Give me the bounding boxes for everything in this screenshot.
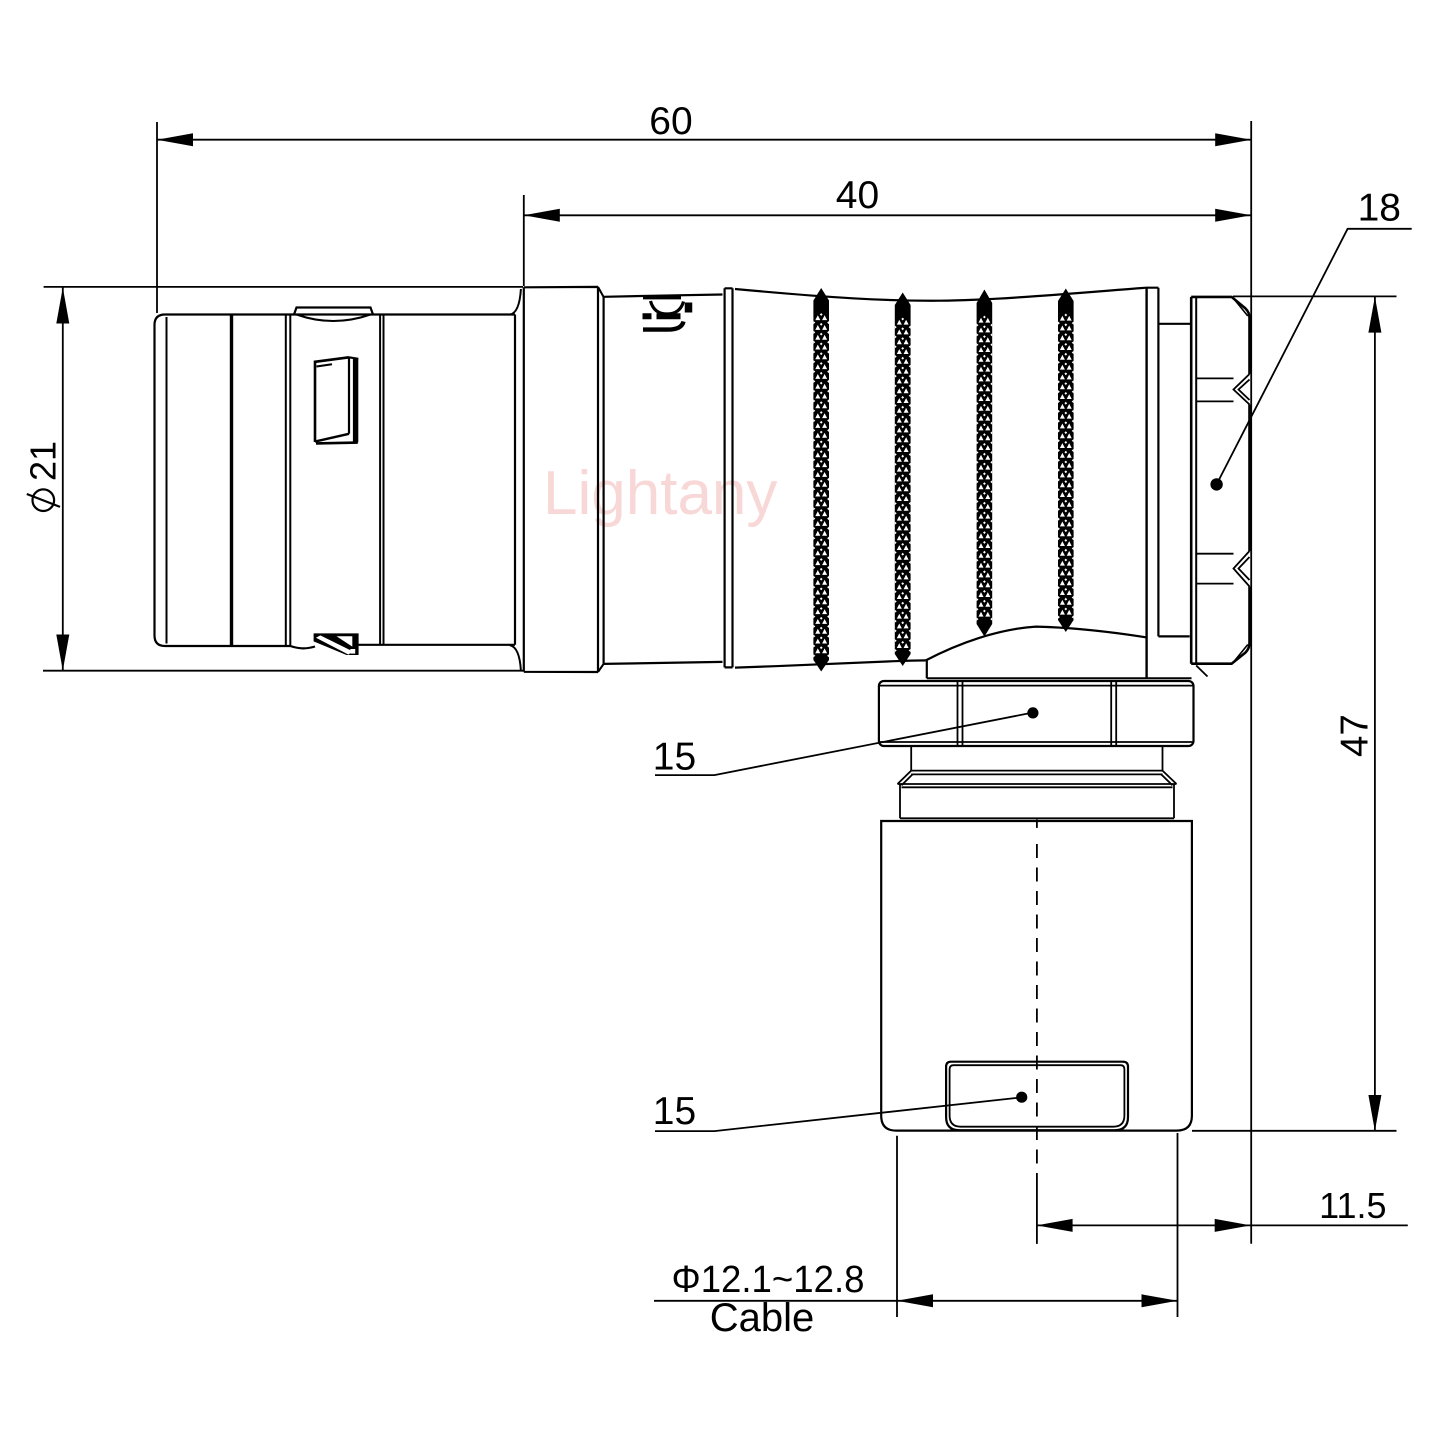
svg-text:15: 15 [653,736,696,779]
svg-text:11.5: 11.5 [1319,1185,1386,1226]
svg-text:Cable: Cable [710,1296,815,1340]
svg-text:15: 15 [653,1090,696,1133]
svg-text:18: 18 [1358,187,1401,230]
svg-text:Φ12.1~12.8: Φ12.1~12.8 [672,1259,865,1301]
svg-text:21: 21 [23,441,64,481]
svg-text:47: 47 [1334,714,1377,757]
svg-text:60: 60 [649,100,692,143]
svg-text:40: 40 [836,174,879,217]
svg-text:Lightany: Lightany [543,459,777,528]
